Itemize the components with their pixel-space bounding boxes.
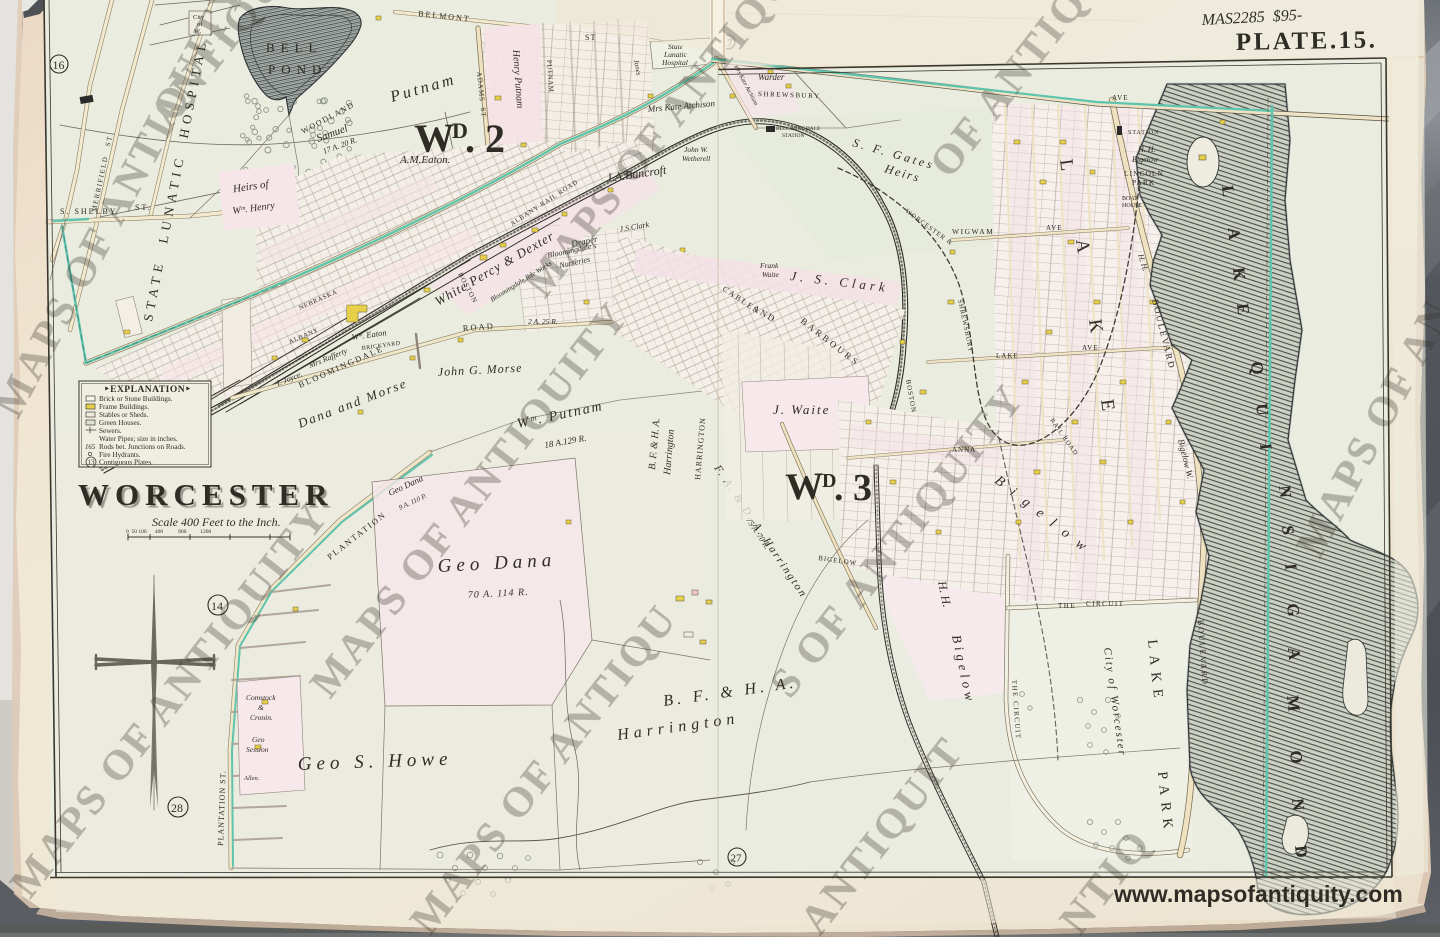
svg-text:HOUSE: HOUSE [1122, 203, 1142, 209]
svg-text:CIRCUIT: CIRCUIT [1086, 600, 1125, 608]
svg-text:BOAT: BOAT [1122, 196, 1138, 202]
svg-text:W: W [414, 115, 458, 161]
svg-text:www.mapsofantiquity.com: www.mapsofantiquity.com [1113, 881, 1403, 907]
svg-text:AVE: AVE [1082, 344, 1098, 352]
svg-text:AVE: AVE [1046, 224, 1062, 232]
svg-text:Cronin.: Cronin. [250, 713, 273, 722]
svg-text:Frame Buildings.: Frame Buildings. [99, 403, 149, 411]
svg-text:&: & [258, 703, 264, 712]
svg-text:‣EXPLANATION‣: ‣EXPLANATION‣ [104, 385, 191, 395]
svg-text:0 50 100 400 8: 0 50 100 400 800 1200 [126, 529, 212, 535]
svg-text:G: G [1283, 602, 1303, 617]
svg-text:Frank: Frank [759, 261, 779, 270]
svg-text:STATION: STATION [782, 133, 805, 139]
svg-text:. 3: . 3 [834, 467, 872, 509]
svg-text:Waite: Waite [762, 270, 779, 279]
svg-text:POND: POND [268, 62, 327, 77]
svg-text:O: O [1286, 749, 1306, 764]
svg-text:WIGWAM: WIGWAM [952, 227, 994, 236]
svg-text:L: L [1055, 158, 1078, 174]
svg-text:27: 27 [731, 853, 743, 865]
svg-text:Wetherell: Wetherell [682, 154, 710, 163]
svg-text:LINCOLN: LINCOLN [1124, 169, 1164, 178]
svg-text:D: D [1291, 844, 1311, 858]
svg-text:Scale 400 Feet to the Inch.: Scale 400 Feet to the Inch. [152, 515, 281, 529]
svg-text:Q: Q [1247, 360, 1267, 375]
svg-text:PARK: PARK [1132, 178, 1155, 187]
svg-text:W: W [785, 465, 825, 508]
svg-text:Geo: Geo [252, 735, 265, 744]
svg-text:THE: THE [1058, 602, 1076, 610]
svg-text:M: M [1283, 694, 1304, 712]
svg-text:AVE: AVE [1112, 94, 1128, 102]
svg-text:Brick or Stone Buildings.: Brick or Stone Buildings. [99, 395, 173, 403]
svg-text:Bigelow: Bigelow [1132, 155, 1159, 164]
svg-text:U: U [1252, 402, 1272, 416]
svg-text:Contiguous Plates.: Contiguous Plates. [99, 459, 153, 467]
svg-text:Green Houses.: Green Houses. [99, 419, 142, 427]
svg-text:PLATE.15.: PLATE.15. [1236, 26, 1378, 55]
svg-text:13: 13 [88, 459, 96, 467]
svg-text:165: 165 [85, 444, 96, 451]
svg-text:Allen.: Allen. [243, 775, 260, 782]
svg-text:H. H.: H. H. [1137, 145, 1156, 154]
svg-text:Rods bet. Junctions on Roads.: Rods bet. Junctions on Roads. [99, 443, 186, 451]
svg-text:STATION: STATION [1128, 130, 1160, 136]
svg-text:ST: ST [585, 33, 596, 42]
svg-text:LAKE: LAKE [996, 352, 1019, 360]
svg-text:E: E [1233, 302, 1253, 315]
svg-text:L: L [1218, 184, 1238, 197]
svg-text:Session: Session [246, 745, 269, 754]
svg-text:BELL: BELL [266, 40, 323, 55]
svg-text:Comstock: Comstock [246, 693, 276, 702]
svg-text:. 2: . 2 [465, 116, 505, 161]
svg-text:John W.: John W. [684, 145, 708, 154]
svg-text:Water Pipes; size in inches.: Water Pipes; size in inches. [99, 435, 178, 443]
svg-text:28: 28 [171, 801, 183, 815]
svg-text:Stables or Sheds.: Stables or Sheds. [99, 411, 149, 419]
svg-text:J. Waite: J. Waite [773, 402, 830, 417]
svg-text:2 A. 25 R.: 2 A. 25 R. [528, 317, 558, 326]
svg-text:16: 16 [53, 58, 65, 72]
svg-text:Sewers.: Sewers. [99, 427, 122, 435]
svg-text:BLOOMINGDALE: BLOOMINGDALE [776, 126, 821, 132]
